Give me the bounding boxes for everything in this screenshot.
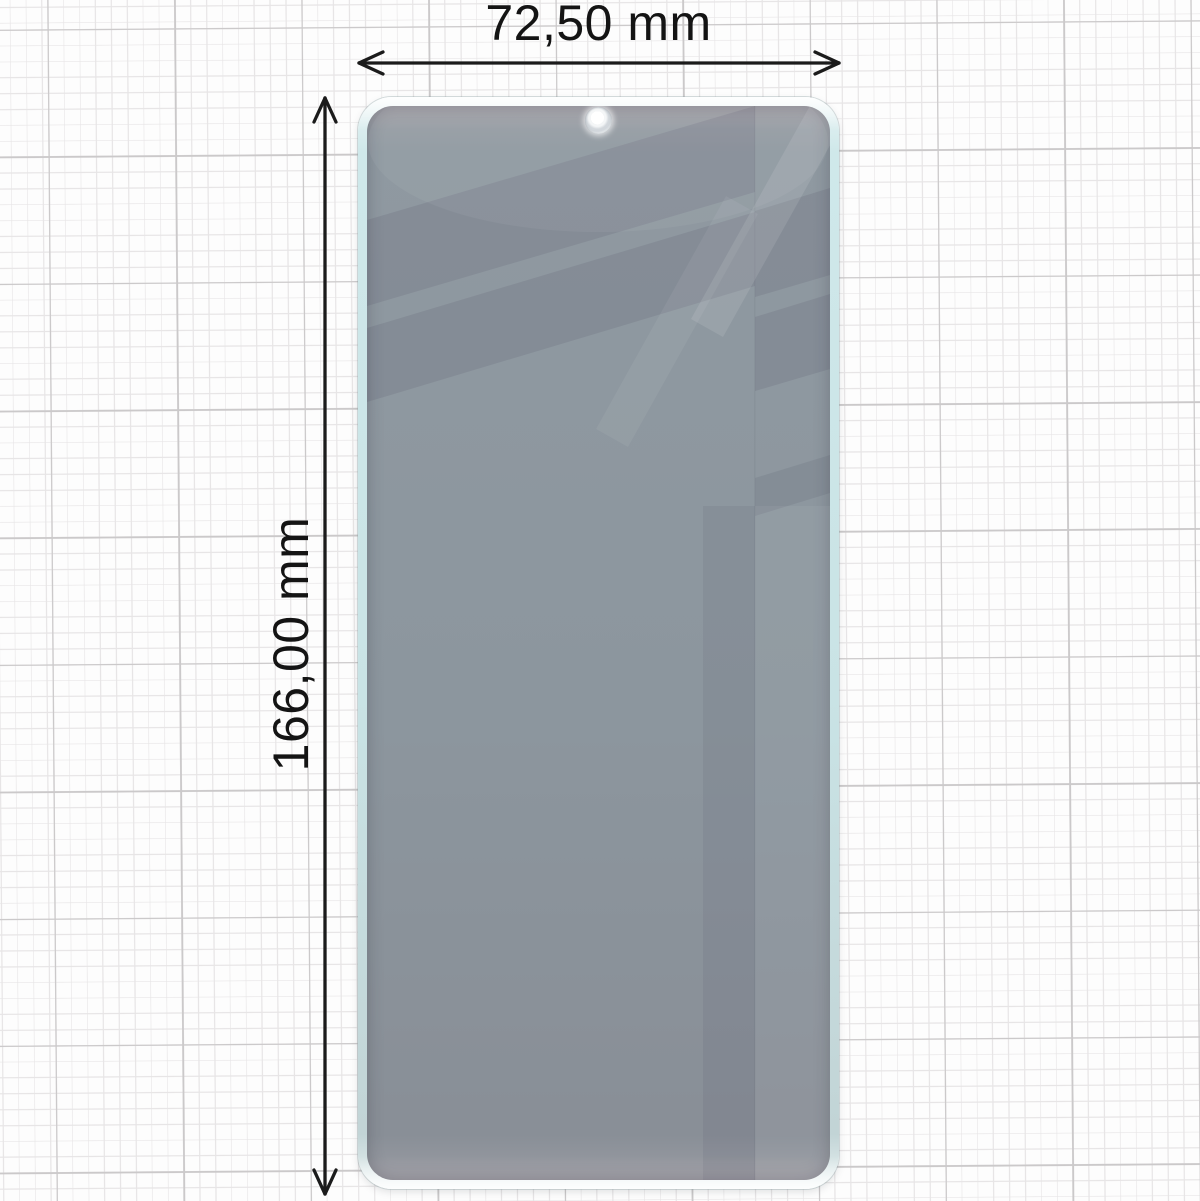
width-arrow-icon [355, 47, 843, 79]
width-dimension-label: 72,50 mm [358, 0, 839, 47]
height-arrow-icon [309, 94, 341, 1198]
screen-protector-glass [367, 106, 830, 1180]
camera-hole-cutout [585, 107, 612, 134]
screen-protector [358, 97, 839, 1189]
glass-reflections [367, 106, 830, 1180]
product-dimensions-figure: 72,50 mm 166,00 mm [0, 0, 1200, 1201]
